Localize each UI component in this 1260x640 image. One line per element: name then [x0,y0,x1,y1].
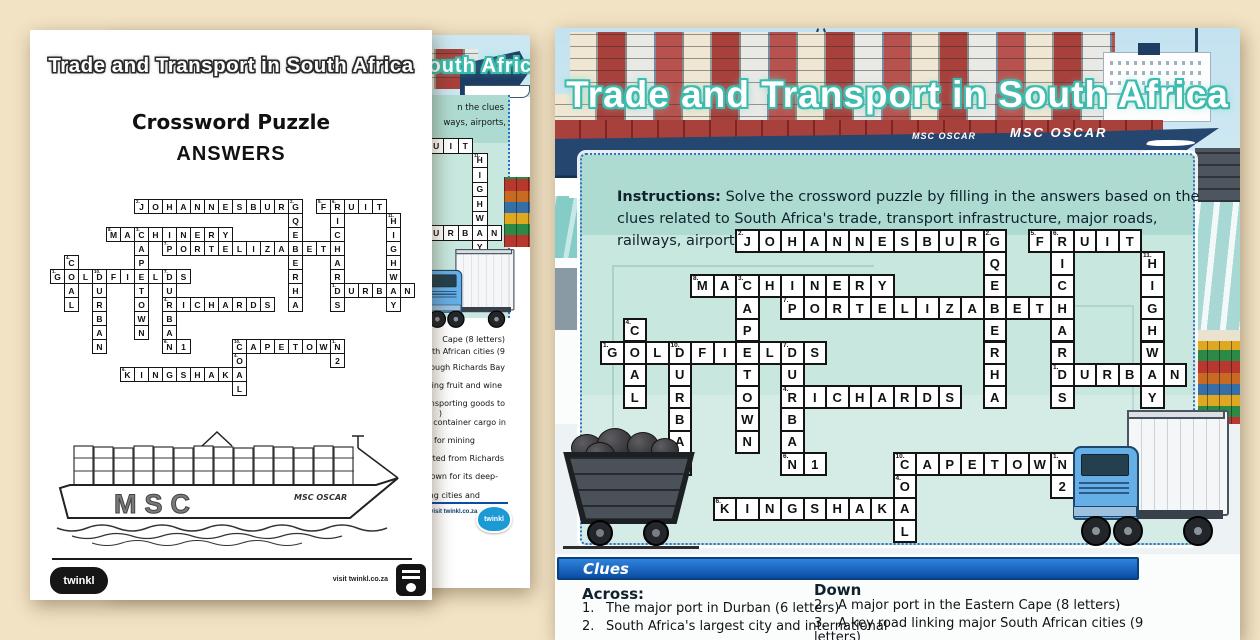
crossword-cell: N [1163,363,1188,387]
answers-page[interactable]: Trade and Transport in South Africa Cros… [30,30,432,600]
cell-number: 11. [388,214,394,219]
crossword-cell: N [758,497,783,521]
crossword-cell: H [204,297,219,312]
crossword-cell: A [1050,318,1075,342]
middle-container-stack [504,177,530,247]
left-quay-shape [555,268,577,330]
crossword-cell: S [803,341,828,365]
crossword-cell: R [204,227,219,242]
crossword-cell: I [915,296,940,320]
cell-number: 4. [783,387,788,394]
crossword-cell: A [232,367,247,382]
crossword-cell: K6. [120,367,135,382]
crossword-cell: A [218,297,233,312]
crossword-cell: S [803,497,828,521]
crossword-cell: A [960,296,985,320]
crossword-cell: U [344,199,359,214]
crossword-cell: 2 [330,353,345,368]
crossword-cell: R6. [1050,229,1075,253]
crossword-cell: F5. [316,199,331,214]
crossword-cell: A [134,241,149,256]
cell-number: 7. [783,343,788,350]
crossword-cell: E [825,274,850,298]
cell-number: 4. [626,320,631,327]
puzzle-page-title: Trade and Transport in South Africa [555,74,1240,116]
crossword-cell: B [983,296,1008,320]
crossword-cell: N [825,229,850,253]
crossword-cell: E [288,255,303,270]
crossword-cell: E [960,452,985,476]
crossword-cell: G2. [288,199,303,214]
text-fragment: th African cities (9 [432,347,505,356]
crossword-cell: D10. [92,269,107,284]
crossword-cell: S [176,367,191,382]
crossword-cell: H [190,367,205,382]
crossword-cell: A [848,497,873,521]
cell-number: 3. [136,228,140,233]
crossword-cell: N [134,325,149,340]
crossword-cell: I [120,269,135,284]
crossword-cell: O [735,385,760,409]
crossword-cell: U [1073,229,1098,253]
answers-footer-visit: visit twinkl.co.za [280,576,388,583]
crossword-cell: N1. [330,339,345,354]
clue-item: 2.A major port in the Eastern Cape (8 le… [814,599,1166,614]
crossword-cell: D7. [780,341,805,365]
cell-number: 11. [1143,253,1152,260]
crossword-cell: H [1050,296,1075,320]
crossword-cell: I [176,297,191,312]
crossword-cell: J2. [735,229,760,253]
instructions-label: Instructions: [617,189,721,205]
crossword-cell: L [64,297,79,312]
crossword-cell: C3. [735,274,760,298]
down-header: Down [814,581,861,599]
cell-number: 1. [1053,365,1058,372]
crossword-cell: H [162,199,177,214]
crossword-cell: T [288,339,303,354]
crossword-cell: A [472,225,488,241]
cell-number: 10. [94,270,100,275]
crossword-cell: Y [1140,385,1165,409]
crossword-cell: T [372,199,387,214]
crossword-cell: Y [386,297,401,312]
crossword-cell: S [260,297,275,312]
crossword-cell: P7. [780,296,805,320]
cell-number: 6. [783,454,788,461]
twinkl-cloud-logo: twinkl [476,505,512,533]
text-fragment: ting fruit and wine [429,381,502,390]
crossword-cell: G [1140,296,1165,320]
crossword-cell: U [92,283,107,298]
answers-heading: ANSWERS [30,143,432,166]
crossword-cell: E [218,241,233,256]
crossword-cell: O [623,341,648,365]
crossword-cell: C [190,297,205,312]
crossword-cell: 1 [176,339,191,354]
crossword-cell: J2. [134,199,149,214]
crossword-cell: I [735,497,760,521]
crossword-cell: D1. [330,283,345,298]
crossword-cell: A [120,227,135,242]
crossword-cell: H [330,241,345,256]
crossword-cell: R [190,241,205,256]
cell-number: 10. [234,340,240,345]
crossword-cell: S [176,269,191,284]
crossword-cell: D7. [162,269,177,284]
crossword-cell: E [870,296,895,320]
crossword-cell: U [780,363,805,387]
crossword-cell: N [848,229,873,253]
cell-number: 1. [603,343,608,350]
crossword-cell: B [246,199,261,214]
crossword-cell: R [1050,341,1075,365]
crossword-cell: G1. [50,269,65,284]
crossword-cell: O [758,229,783,253]
crossword-cell: G [780,497,805,521]
crossword-cell: I [1140,274,1165,298]
crossword-cell: D [915,385,940,409]
crossword-cell: S [232,199,247,214]
crossword-cell: R [288,269,303,284]
cell-number: 7. [164,242,168,247]
crossword-cell: N1. [1050,452,1075,476]
middle-footer-rule [428,502,508,504]
cell-number: 4. [66,256,70,261]
crossword-cell: Z [260,241,275,256]
crossword-cell: I [803,385,828,409]
crossword-cell: W [472,211,488,227]
clue-item: 3.A key road linking major South African… [814,617,1166,640]
crossword-cell: A [386,283,401,298]
cell-number: 6. [1053,231,1058,238]
crossword-cell: R [960,229,985,253]
crossword-cell: K [870,497,895,521]
crossword-cell: M8. [106,227,121,242]
text-fragment: n the clues [457,103,504,113]
answers-footer-rule [52,558,412,560]
crossword-cell: T [735,363,760,387]
rail [563,546,699,549]
crossword-cell: E [274,339,289,354]
quay-strip [1195,330,1240,341]
crossword-cell: P [735,318,760,342]
crossword-cell: A [983,385,1008,409]
crossword-cell: T [458,138,474,154]
coal-cart [557,426,707,556]
crossword-cell: R [668,385,693,409]
crossword-cell: Y [218,227,233,242]
crossword-cell: R [1095,363,1120,387]
crossword-cell: N [487,225,503,241]
clues-banner: Clues [557,557,1139,580]
cell-number: 1. [52,270,56,275]
cell-number: 6. [716,499,721,506]
clues-banner-label: Clues [583,560,629,578]
crossword-cell: S [938,385,963,409]
ship-name-large: MSC OSCAR [1010,125,1107,140]
crossword-cell: U [344,283,359,298]
crossword-cell: U [938,229,963,253]
cell-number: 2. [136,200,140,205]
crossword-cell: N [735,430,760,454]
crossword-cell: I [713,341,738,365]
crossword-cell: R [893,385,918,409]
text-fragment: container cargo in [433,418,506,427]
crossword-cell: A [870,385,895,409]
cell-number: 5. [318,200,322,205]
crossword-cell: E [983,318,1008,342]
crossword-cell: I [1050,251,1075,275]
crossword-cell: L [623,385,648,409]
crossword-cell: A [330,255,345,270]
ship-line-art: MSC MSC OSCAR [52,428,414,548]
crossword-cell: L [232,381,247,396]
text-fragment: ) [439,409,442,418]
crossword-cell: R [358,283,373,298]
crossword-cell: P [260,339,275,354]
crossword-cell: N [400,283,415,298]
crossword-cell: A [713,274,738,298]
crossword-cell: E [302,241,317,256]
crossword-cell: M8. [690,274,715,298]
crossword-cell: U [162,283,177,298]
crossword-cell: H [386,255,401,270]
ship-name-label: MSC OSCAR [294,493,347,502]
crossword-cell: E [190,227,205,242]
crossword-cell: A [162,325,177,340]
cell-number: 4. [164,298,168,303]
crossword-cell: O [302,339,317,354]
crossword-cell: K [218,367,233,382]
crossword-cell: E [134,269,149,284]
crossword-cell: U [668,363,693,387]
crossword-cell: D1. [1050,363,1075,387]
crossword-cell: D10. [668,341,693,365]
answers-subtitle: Crossword Puzzle [30,110,432,134]
crossword-cell: O [803,296,828,320]
cell-number: 2. [986,231,991,238]
crossword-cell: C [1050,274,1075,298]
text-fragment: rough Richards Bay [427,363,505,372]
crossword-cell: H11. [472,153,488,169]
crossword-cell: H [758,274,783,298]
crossword-cell: Y [870,274,895,298]
crossword-cell: Q [288,213,303,228]
crossword-cell: N [148,367,163,382]
crossword-cell: B [372,283,387,298]
crossword-cell: L [78,269,93,284]
crossword-cell: C10. [232,339,247,354]
crossword-cell: K6. [713,497,738,521]
crossword-cell: A [64,283,79,298]
crossword-cell: G2. [983,229,1008,253]
cell-number: 1. [1053,454,1058,461]
crossword-cell: B [288,241,303,256]
middle-footer-visit: visit twinkl.co.za [430,509,477,515]
cell-number: 4. [234,354,238,359]
crossword-cell: W [1140,341,1165,365]
truck-right [1073,410,1225,560]
cell-number: 6. [164,340,168,345]
text-fragment: nown for its deep- [425,472,498,481]
crossword-cell: T [1118,229,1143,253]
crossword-cell: A [92,325,107,340]
crossword-cell: E [1005,296,1030,320]
crossword-cell: F [106,269,121,284]
cell-number: 8. [693,276,698,283]
crossword-cell: A [176,199,191,214]
crossword-cell: T [134,283,149,298]
crossword-cell: O [1005,452,1030,476]
crossword-cell: P [134,255,149,270]
quality-badge-icon [396,564,426,596]
crossword-cell: G [472,182,488,198]
crossword-cell: A [803,229,828,253]
crossword-cell: I [1095,229,1120,253]
crossword-cell: H [148,227,163,242]
cell-number: 8. [108,228,112,233]
crossword-cell: R [983,341,1008,365]
crossword-cell: S [893,229,918,253]
crossword-cell: L [758,341,783,365]
cell-number: 7. [164,270,168,275]
crossword-cell: A [204,367,219,382]
crossword-cell: H [983,363,1008,387]
cell-number: 6. [122,368,126,373]
crossword-cell: A [623,363,648,387]
crossword-cell: H [472,196,488,212]
crossword-cell: W [1028,452,1053,476]
crossword-cell: C10. [893,452,918,476]
crossword-cell: L [893,519,918,543]
crossword-cell: I [162,227,177,242]
crossword-cell: N [803,274,828,298]
crossword-cell: B [1118,363,1143,387]
crossword-cell: N [92,339,107,354]
crossword-cell: O4. [893,474,918,498]
cell-number: 1. [332,340,336,345]
crossword-cell: R [232,297,247,312]
crossword-cell: Z [938,296,963,320]
crossword-cell: B [915,229,940,253]
crossword-cell: F [690,341,715,365]
crossword-cell: W [316,339,331,354]
crossword-cell: R4. [780,385,805,409]
crossword-cell: A [893,497,918,521]
crossword-cell: I [246,241,261,256]
crossword-cell: U [1073,363,1098,387]
crossword-cell: H11. [1140,251,1165,275]
crossword-cell: E [735,341,760,365]
crossword-cell: A [288,297,303,312]
crossword-cell: B [162,311,177,326]
crossword-cell: H11. [386,213,401,228]
crossword-cell: U [260,199,275,214]
crossword-cell: W [386,269,401,284]
cell-number: 6. [332,200,336,205]
crossword-cell: N [204,199,219,214]
crossword-cell: F5. [1028,229,1053,253]
crossword-cell: A [915,452,940,476]
crossword-cell: A [735,296,760,320]
crossword-cell: H [288,283,303,298]
crossword-cell: L [645,341,670,365]
answers-page-title: Trade and Transport in South Africa [30,54,432,78]
twinkl-logo: twinkl [50,567,108,594]
crossword-cell: R6. [330,199,345,214]
puzzle-page[interactable]: MSC OSCAR MSC OSCAR Trade and Transport … [555,28,1240,640]
crossword-cell: A [274,241,289,256]
down-clues: 2.A major port in the Eastern Cape (8 le… [814,599,1166,640]
crossword-cell: T [1028,296,1053,320]
cell-number: 10. [896,454,905,461]
crossword-cell: N [176,227,191,242]
crossword-cell: C4. [623,318,648,342]
crossword-cell: 1 [803,452,828,476]
crossword-cell: N6. [162,339,177,354]
crossword-cell: H [1140,318,1165,342]
crossword-cell: R [825,296,850,320]
truck-middle [424,249,512,336]
crossword-cell: I [330,213,345,228]
twinkl-cloud-logo-text: twinkl [484,516,504,523]
text-fragment: rted from Richards [429,454,504,463]
crossword-cell: L [148,269,163,284]
crossword-cell: H [825,497,850,521]
crossword-cell: O [134,297,149,312]
crossword-cell: C3. [134,227,149,242]
crossword-cell: O4. [232,353,247,368]
crossword-cell: I [358,199,373,214]
crossword-cell: I [443,138,459,154]
cell-number: 4. [896,476,901,483]
ship-name-small: MSC OSCAR [912,131,976,141]
text-fragment: nsporting goods to [430,399,505,408]
crossword-cell: P7. [162,241,177,256]
crossword-cell: E [218,199,233,214]
crossword-cell: B [780,407,805,431]
crossword-cell: E [983,274,1008,298]
crossword-cell: H [848,385,873,409]
crossword-cell: R4. [162,297,177,312]
crossword-cell: T [848,296,873,320]
crossword-cell: O [148,199,163,214]
crossword-cell: N [190,199,205,214]
crossword-cell: L [893,296,918,320]
crossword-cell: A [780,430,805,454]
text-fragment: Cape (8 letters) [442,335,505,344]
crossword-cell: R [443,225,459,241]
ship-funnel [1138,43,1160,55]
crossword-cell: G [162,367,177,382]
cell-number: 1. [332,284,336,289]
crossword-cell: T [983,452,1008,476]
crossword-cell: E [288,227,303,242]
crossword-cell: N6. [780,452,805,476]
crossword-cell: S [330,297,345,312]
cell-number: 10. [671,343,680,350]
crossword-cell: E [870,229,895,253]
crossword-cell: C [825,385,850,409]
cell-number: 7. [783,298,788,305]
cell-number: 3. [738,276,743,283]
crossword-cell: W [735,407,760,431]
crossword-cell: C [330,227,345,242]
crossword-cell: I [780,274,805,298]
crossword-cell: O [176,241,191,256]
crossword-cell: R [274,199,289,214]
